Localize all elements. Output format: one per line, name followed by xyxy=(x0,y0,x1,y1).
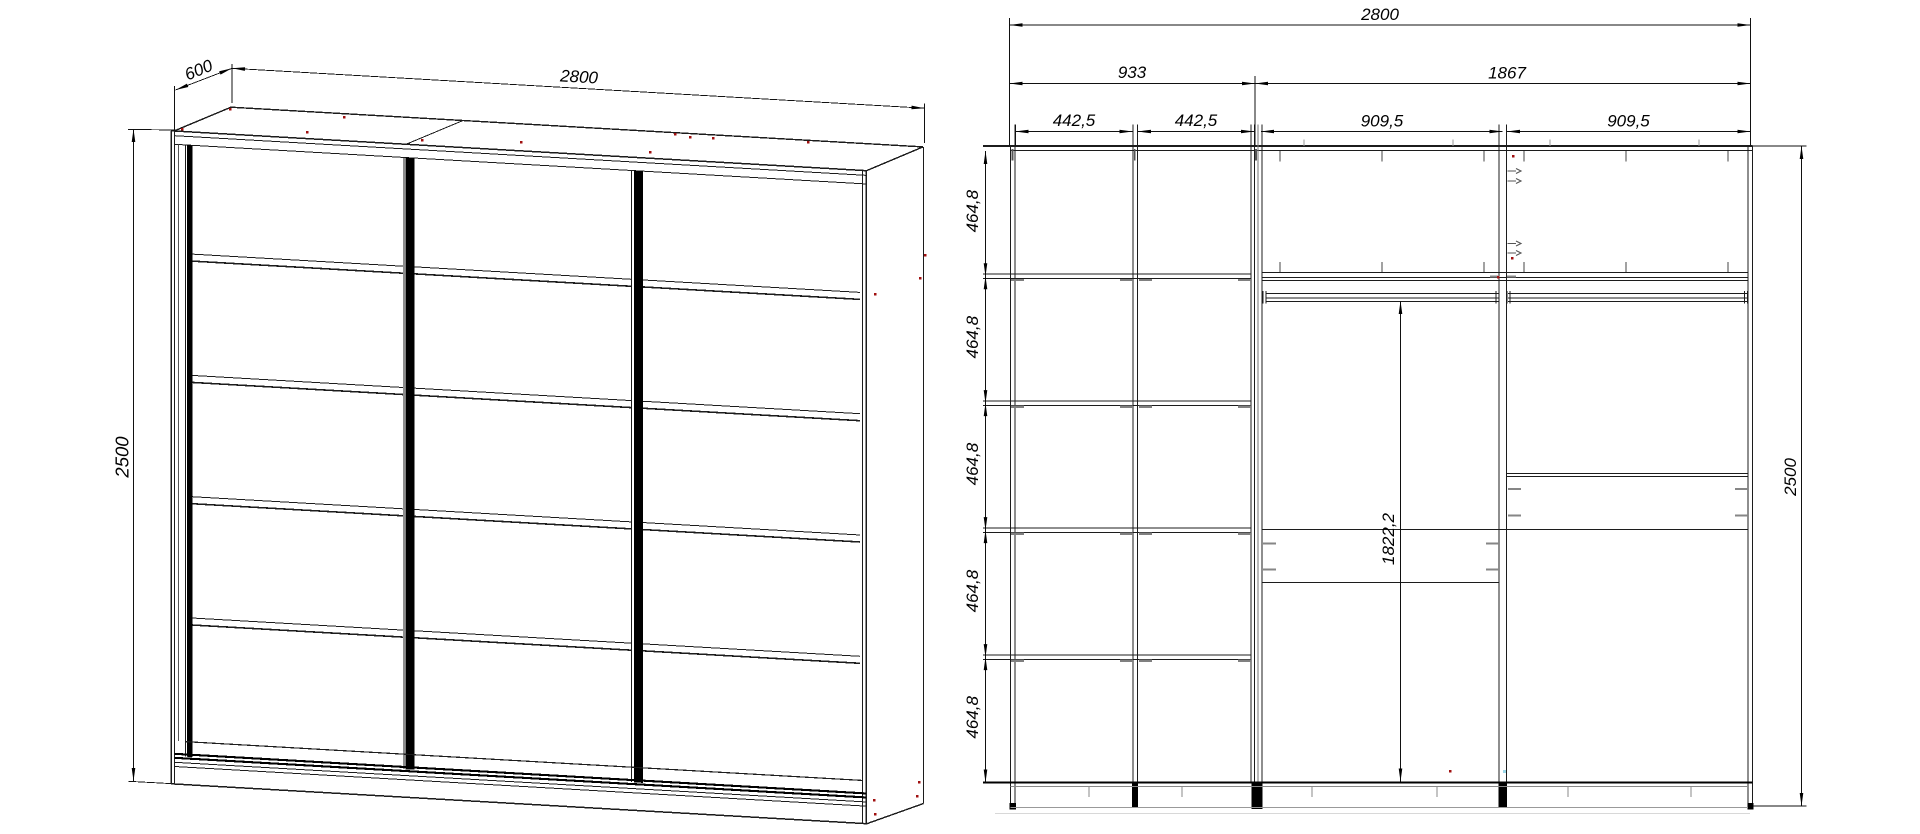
svg-text:2500: 2500 xyxy=(1781,458,1800,497)
svg-text:933: 933 xyxy=(1118,63,1147,82)
svg-text:464,8: 464,8 xyxy=(963,569,982,612)
svg-text:2800: 2800 xyxy=(559,66,599,87)
svg-text:909,5: 909,5 xyxy=(1361,111,1404,130)
svg-text:2800: 2800 xyxy=(1360,5,1399,24)
svg-text:442,5: 442,5 xyxy=(1053,111,1096,130)
svg-text:909,5: 909,5 xyxy=(1607,111,1650,130)
svg-text:464,8: 464,8 xyxy=(963,695,982,738)
svg-text:442,5: 442,5 xyxy=(1175,111,1218,130)
svg-text:464,8: 464,8 xyxy=(963,442,982,485)
svg-text:1867: 1867 xyxy=(1488,63,1526,82)
svg-text:1822,2: 1822,2 xyxy=(1379,512,1398,565)
svg-text:464,8: 464,8 xyxy=(963,189,982,232)
svg-text:2500: 2500 xyxy=(112,436,133,479)
svg-text:464,8: 464,8 xyxy=(963,315,982,358)
